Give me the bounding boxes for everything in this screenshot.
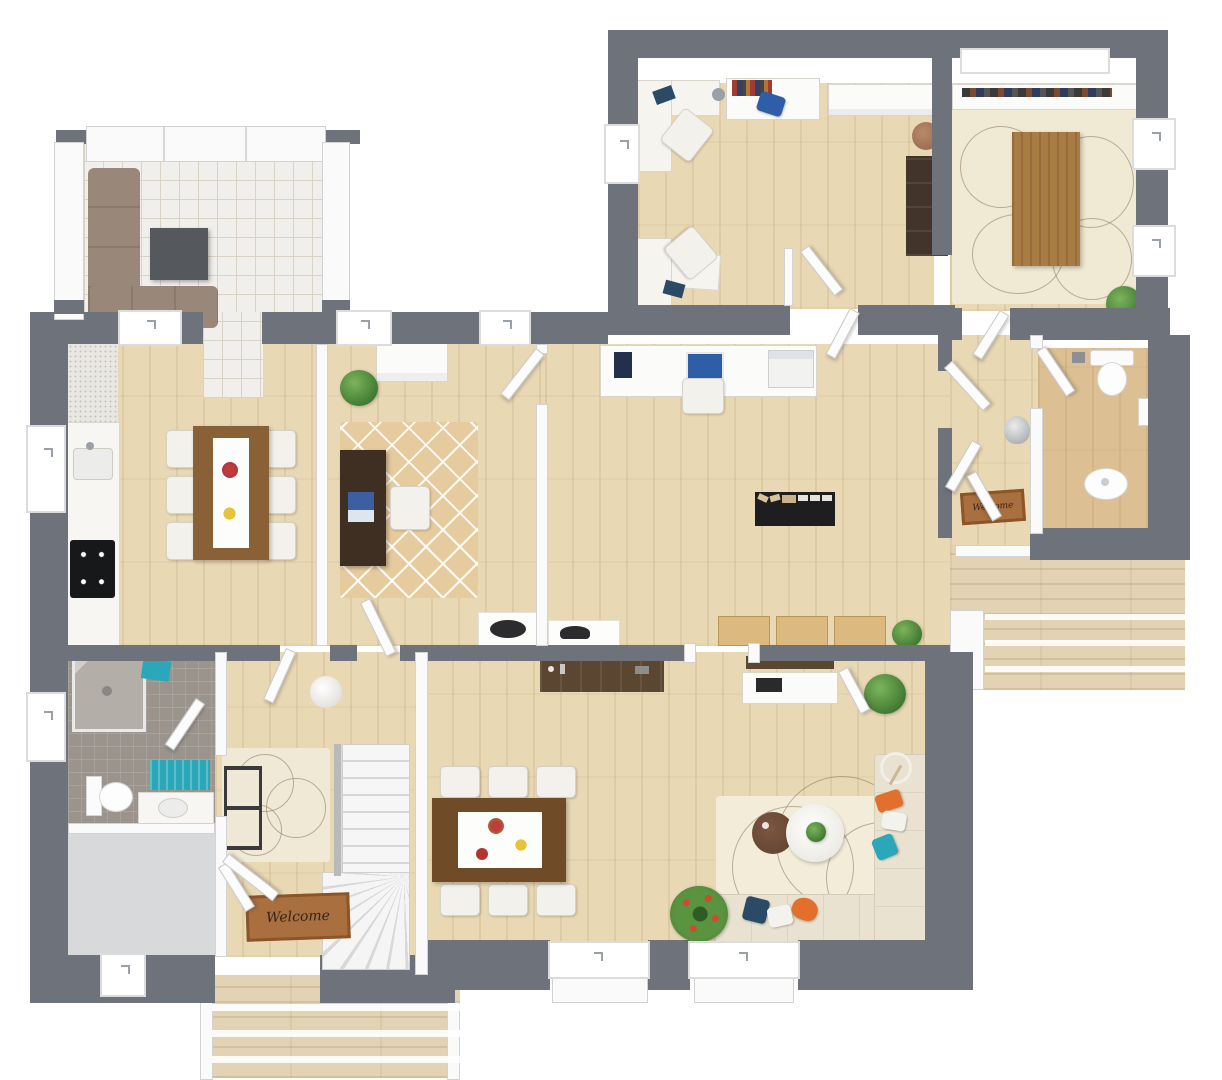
potted-plant	[892, 620, 922, 648]
window	[336, 310, 392, 346]
window	[688, 941, 800, 979]
kitchen-faucet	[86, 442, 94, 450]
window	[1132, 225, 1176, 277]
wall-wc-partition	[1030, 408, 1043, 534]
window	[100, 953, 146, 997]
wall	[262, 312, 340, 344]
shoe	[798, 495, 808, 501]
window	[479, 310, 531, 346]
window	[1132, 118, 1176, 170]
wall	[430, 645, 686, 661]
sunroom-glass-left	[54, 142, 84, 320]
conference-table	[1012, 132, 1080, 266]
teal-bath-mat	[150, 760, 210, 790]
shoe	[810, 495, 820, 501]
vase	[1004, 416, 1030, 444]
table-runner	[213, 438, 249, 548]
sunroom-corner	[54, 300, 84, 314]
deck-step	[985, 640, 1185, 646]
study-chair	[390, 486, 430, 530]
dark-bowl	[560, 626, 590, 639]
sunroom-coffee-table	[150, 228, 208, 280]
wall	[798, 940, 973, 990]
wreath-plant	[670, 886, 728, 942]
floor-plan-canvas: Welcome Welcome	[0, 0, 1222, 1080]
wall	[30, 312, 68, 972]
wall-wc-partition	[1030, 335, 1043, 349]
wood-bench	[834, 616, 886, 646]
red-bowl	[476, 848, 488, 860]
potted-plant	[340, 370, 378, 406]
toilet-bowl	[1097, 362, 1127, 396]
wall	[180, 312, 203, 344]
door-post	[748, 643, 760, 663]
wall-entry-living	[415, 652, 428, 975]
window	[604, 124, 640, 184]
porch-step	[212, 1056, 460, 1063]
wall-bath-storage	[68, 823, 215, 834]
flower-vase	[222, 462, 238, 478]
staircase-straight-flight	[342, 744, 410, 874]
flower-vase	[488, 818, 504, 834]
living-sideboard	[540, 660, 664, 692]
sunroom-glass-right	[322, 142, 350, 314]
wall-study-hall	[536, 404, 548, 646]
laptop	[348, 492, 374, 522]
dining-chair	[536, 884, 576, 916]
wall	[425, 940, 550, 990]
wall-bath-entry	[215, 652, 227, 756]
shoe	[757, 493, 769, 503]
wall	[608, 305, 790, 335]
deck-threshold	[955, 545, 1033, 557]
dining-chair	[488, 884, 528, 916]
shoe	[782, 495, 796, 503]
wall	[528, 312, 608, 344]
wood-bench	[776, 616, 828, 646]
welcome-mat-front: Welcome	[245, 892, 351, 942]
vanity-sink	[158, 798, 188, 818]
welcome-mat-text: Welcome	[266, 908, 330, 926]
wall	[1030, 528, 1190, 560]
dining-chair	[488, 766, 528, 798]
shower-drain	[102, 686, 112, 696]
table-plant	[806, 822, 826, 842]
kitchen-backsplash	[68, 344, 118, 424]
tablet	[614, 352, 632, 378]
wall-office-vestibule	[784, 248, 793, 306]
deco-dots	[762, 822, 769, 829]
porch-stringer	[200, 1002, 213, 1080]
teal-towels	[141, 658, 172, 682]
dining-chair	[440, 766, 480, 798]
monitor	[686, 352, 724, 380]
wall-kitchen-study	[316, 344, 328, 646]
wall	[390, 312, 483, 344]
window-sill	[552, 977, 648, 1003]
trash-bin	[712, 88, 725, 101]
window	[26, 692, 66, 762]
door-post	[684, 643, 696, 663]
flush-button	[1072, 352, 1085, 363]
stair-handrail	[334, 744, 341, 876]
cooktop	[70, 540, 115, 598]
record-player	[756, 678, 782, 692]
shoe-rack	[755, 492, 835, 526]
sink-drain	[1101, 478, 1109, 486]
office-sideboard	[828, 84, 934, 116]
kitchen-sink	[73, 448, 113, 480]
storage-floor	[68, 833, 215, 957]
plate	[514, 838, 528, 852]
dining-chair	[440, 884, 480, 916]
dark-bowl	[490, 620, 526, 638]
deck-step	[985, 666, 1185, 672]
wall	[760, 645, 950, 661]
wall	[648, 940, 690, 990]
porch-stringer	[447, 1002, 460, 1080]
shoe	[822, 495, 832, 501]
porch-step	[212, 1004, 460, 1011]
wall	[330, 645, 357, 661]
books-row	[962, 88, 1112, 97]
wall	[30, 645, 280, 661]
bench-cushion	[227, 810, 259, 846]
wall	[1148, 335, 1190, 547]
dining-chair	[536, 766, 576, 798]
printer	[768, 350, 814, 388]
pouf	[310, 676, 342, 708]
desk-chair	[682, 378, 724, 414]
window	[118, 310, 182, 346]
wood-bench	[718, 616, 770, 646]
window	[548, 941, 650, 979]
window	[26, 425, 66, 513]
plate	[222, 506, 237, 521]
bench-cushion	[227, 770, 259, 806]
window	[960, 48, 1110, 74]
floor-lamp	[880, 752, 912, 784]
wall-bath-entry	[215, 816, 227, 957]
shoe	[769, 494, 780, 502]
sunroom-glass-top	[86, 126, 326, 162]
deck-step	[985, 614, 1185, 620]
porch-step	[212, 1030, 460, 1037]
toilet-bowl	[99, 782, 133, 812]
window-sill	[694, 977, 794, 1003]
wall	[925, 652, 973, 974]
wall-office-conference	[932, 55, 952, 255]
pillow-white	[881, 810, 908, 832]
corner-plant	[864, 674, 906, 714]
